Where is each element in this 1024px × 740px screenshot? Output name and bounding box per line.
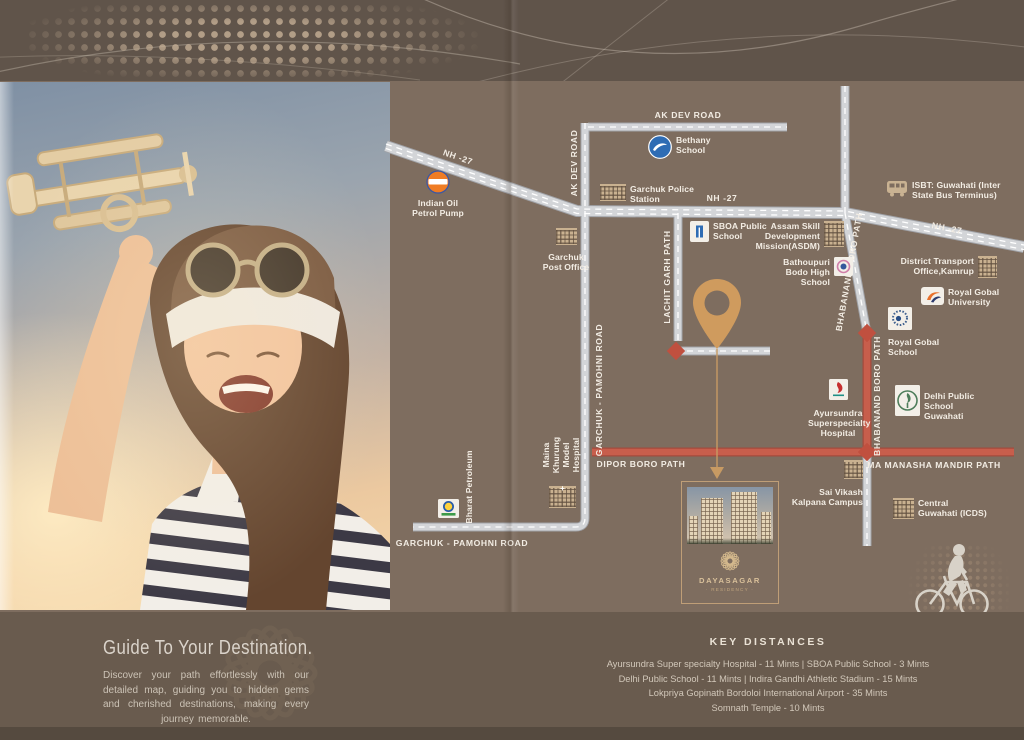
indian-oil-icon	[426, 170, 450, 194]
garchuk-police-station-icon	[600, 184, 626, 201]
dayasagar-residency-card: DAYASAGAR · RESIDENCY ·	[681, 481, 779, 604]
central-guwahati-icon	[893, 498, 914, 519]
landmark-royal-gobal-school: Royal Gobal School	[888, 307, 940, 357]
key-distances-heading: KEY DISTANCES	[568, 636, 968, 648]
royal-gobal-school-icon	[888, 307, 912, 330]
road-label-dipor-boro-path: DIPOR BORO PATH	[597, 459, 686, 469]
bottom-strip	[0, 727, 1024, 740]
landmark-district-transport-office: District Transport Office,Kamrup	[892, 256, 997, 278]
key-distance-line: Ayursundra Super specialty Hospital - 11…	[568, 657, 968, 672]
brand-tagline: · RESIDENCY ·	[706, 587, 754, 592]
road-label-nh27-center: NH -27	[707, 193, 738, 203]
landmark-ayursundra-hospital: Ayursundra Superspecialty Hospital	[808, 379, 868, 438]
bharat-petroleum-icon	[438, 499, 459, 518]
royal-gobal-university-icon	[921, 287, 944, 305]
asdm-icon	[824, 221, 844, 247]
garchuk-post-office-icon	[556, 228, 577, 245]
landmark-asdm: Assam Skill Development Mission(ASDM)	[742, 221, 844, 251]
hero-heading: Guide To Your Destination.	[103, 637, 313, 660]
landmark-bathoupuri-bodo-high-school: Bathoupuri Bodo High School	[768, 257, 853, 287]
sboa-public-school-icon	[690, 221, 709, 242]
key-distance-line: Somnath Temple - 10 Mints	[568, 701, 968, 716]
landmark-sai-vikash-kalpana-campus: Sai Vikash Kalpana Campus	[783, 460, 863, 507]
hero-description: Discover your path effortlessly with our…	[103, 669, 309, 727]
road-label-bhabanand-vertical: BHABANAND BORO PATH	[872, 336, 882, 456]
isbt-bus-icon	[886, 180, 908, 197]
key-distance-line: Lokpriya Gopinath Bordoloi International…	[568, 686, 968, 701]
building-render-image	[687, 487, 773, 544]
landmark-royal-gobal-university: Royal Gobal University	[921, 287, 1006, 307]
road-label-lachit-garh-path: LACHIT GARH PATH	[662, 230, 672, 323]
maina-khurung-hospital-icon: +	[549, 486, 576, 508]
landmark-maina-khurung-label: Maina Khurung Model Hospital	[541, 426, 581, 484]
location-pin	[693, 279, 741, 349]
pin-pointer-line	[710, 349, 724, 479]
road-label-ak-dev-road-top: AK DEV ROAD	[655, 110, 722, 120]
dayasagar-logo-icon	[717, 548, 743, 574]
landmark-delhi-public-school: Delhi Public School Guwahati	[895, 385, 990, 421]
bethany-school-icon	[648, 135, 672, 159]
road-label-garchuk-pamohni-vertical: GARCHUK - PAMOHNI ROAD	[594, 324, 604, 456]
key-distance-line: Delhi Public School - 11 Mints | Indira …	[568, 672, 968, 687]
landmark-bethany-school: Bethany School	[648, 135, 722, 159]
brochure-page: AK DEV ROAD AK DEV ROAD NH -27 NH -27 NH…	[0, 0, 1024, 740]
brand-name: DAYASAGAR	[699, 576, 761, 585]
landmark-garchuk-post-office: Garchuk Post Office	[540, 228, 592, 272]
delhi-public-school-icon	[895, 385, 920, 416]
key-distances: KEY DISTANCES Ayursundra Super specialty…	[568, 636, 968, 715]
district-transport-office-icon	[978, 256, 997, 278]
landmark-garchuk-police-station: Garchuk Police Station	[600, 184, 704, 204]
road-label-ma-manasha-mandir-path: MA MANASHA MANDIR PATH	[867, 460, 1001, 470]
landmark-indian-oil: Indian Oil Petrol Pump	[406, 170, 470, 218]
ayursundra-hospital-icon	[829, 379, 848, 400]
sai-vikash-icon	[844, 460, 863, 479]
landmark-isbt-guwahati: ISBT: Guwahati (Inter State Bus Terminus…	[886, 180, 1014, 200]
bathoupuri-school-icon	[834, 257, 853, 276]
landmark-central-guwahati-icds: Central Guwahati (ICDS)	[893, 498, 988, 519]
landmark-bharat-petroleum-label: Bharat Petroleum	[464, 450, 474, 523]
road-label-ak-dev-road-vertical: AK DEV ROAD	[569, 130, 579, 197]
